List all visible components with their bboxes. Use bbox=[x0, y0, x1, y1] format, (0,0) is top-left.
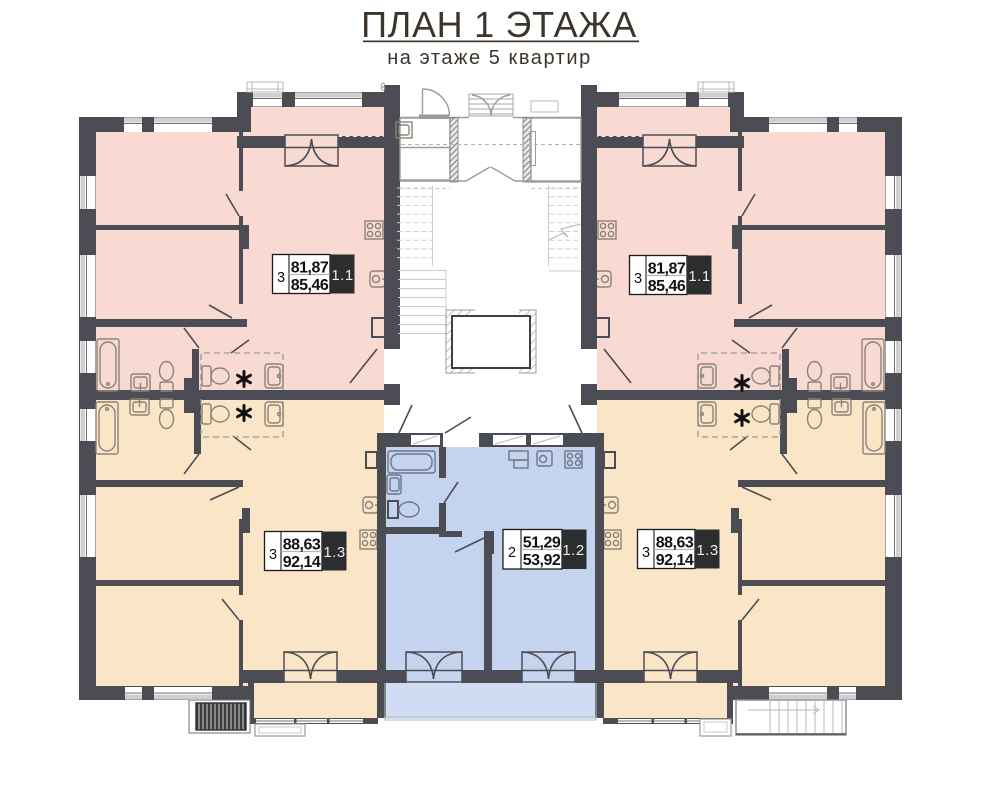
svg-text:3: 3 bbox=[642, 545, 650, 561]
svg-text:2: 2 bbox=[508, 545, 516, 561]
svg-text:81,87: 81,87 bbox=[648, 261, 686, 278]
svg-text:85,46: 85,46 bbox=[291, 277, 329, 294]
svg-text:88,63: 88,63 bbox=[656, 535, 694, 552]
svg-text:88,63: 88,63 bbox=[283, 537, 321, 554]
svg-text:92,14: 92,14 bbox=[656, 552, 694, 569]
svg-text:3: 3 bbox=[634, 271, 642, 287]
svg-text:81,87: 81,87 bbox=[291, 260, 329, 277]
svg-text:1.2: 1.2 bbox=[562, 542, 584, 559]
svg-text:1.1: 1.1 bbox=[688, 268, 710, 285]
svg-text:51,29: 51,29 bbox=[523, 535, 561, 552]
svg-text:3: 3 bbox=[269, 547, 277, 563]
svg-text:53,92: 53,92 bbox=[523, 552, 561, 569]
svg-text:92,14: 92,14 bbox=[283, 554, 321, 571]
svg-text:1.3: 1.3 bbox=[323, 544, 345, 561]
svg-text:85,46: 85,46 bbox=[648, 278, 686, 295]
svg-text:на этаже 5 квартир: на этаже 5 квартир bbox=[387, 47, 592, 69]
svg-text:1.1: 1.1 bbox=[331, 267, 353, 284]
svg-text:3: 3 bbox=[277, 270, 285, 286]
svg-text:ПЛАН 1 ЭТАЖА: ПЛАН 1 ЭТАЖА bbox=[361, 4, 637, 45]
svg-text:1.3: 1.3 bbox=[696, 542, 718, 559]
